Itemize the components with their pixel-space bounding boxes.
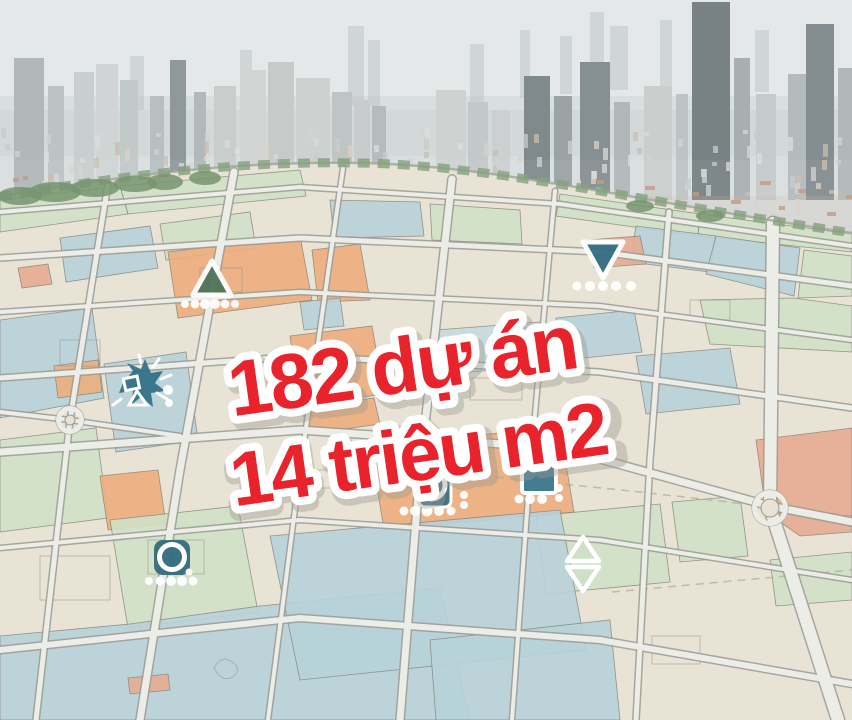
planning-map: 182 dự án 182 dự án 14 triệu m2 14 triệu…: [0, 0, 852, 720]
marker-dot: [191, 300, 200, 309]
marker-dot: [145, 577, 153, 585]
marker-dot: [156, 577, 165, 586]
marker-dot: [611, 281, 621, 291]
marker-dot: [210, 299, 220, 309]
marker-dot: [189, 577, 198, 586]
marker-dot: [200, 299, 210, 309]
promo-graphic: 182 dự án 182 dự án 14 triệu m2 14 triệu…: [0, 0, 852, 720]
marker-dot: [515, 495, 524, 504]
marker-dot: [186, 569, 193, 576]
marker-dot: [177, 576, 187, 586]
marker-dot: [221, 300, 230, 309]
marker-dot: [573, 282, 582, 291]
marker-dot: [585, 281, 595, 291]
marker-dot: [447, 507, 456, 516]
marker-dot: [555, 494, 563, 502]
marker-dot: [598, 281, 608, 291]
marker-dot: [434, 506, 444, 516]
marker-dot: [422, 506, 433, 517]
marker-dot: [231, 300, 239, 308]
marker-dot: [166, 576, 176, 586]
marker-dot: [537, 494, 547, 504]
marker-dot: [165, 399, 173, 407]
marker-dot: [626, 281, 636, 291]
marker-dot: [525, 494, 535, 504]
marker-dot: [400, 507, 409, 516]
marker-dot: [460, 501, 468, 509]
marker-dot: [163, 385, 173, 395]
marker-dot: [555, 484, 563, 492]
marker-dot: [181, 300, 189, 308]
marker-dot: [410, 506, 420, 516]
